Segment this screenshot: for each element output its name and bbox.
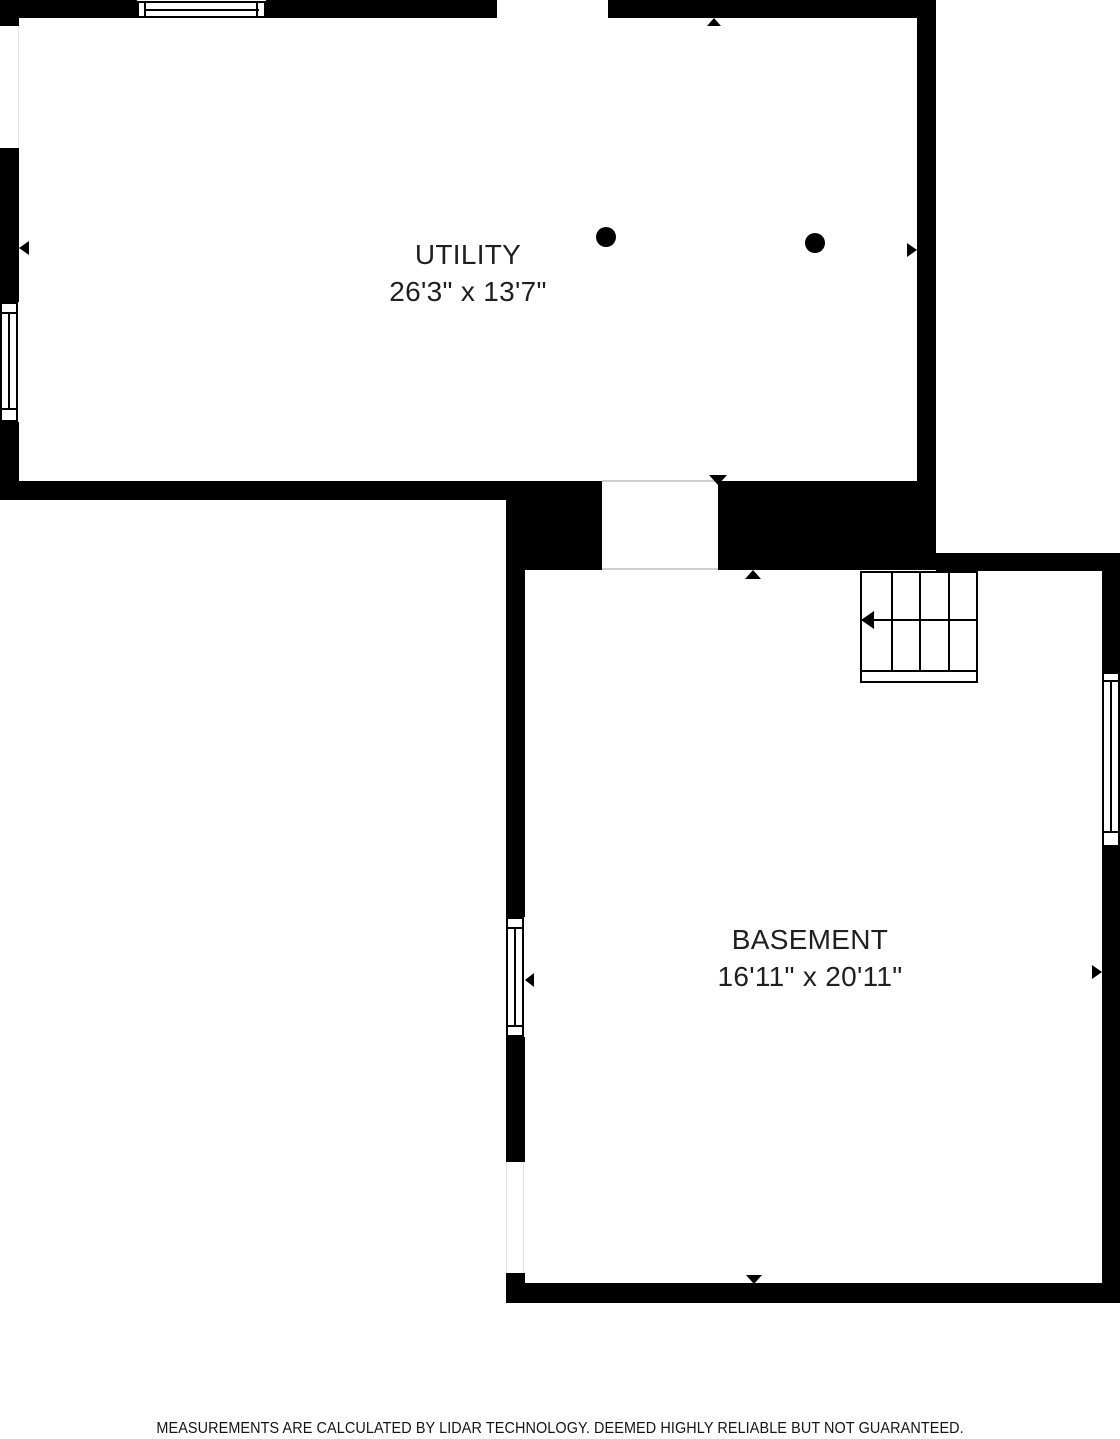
window-frame-line xyxy=(1110,682,1112,831)
window-frame-line xyxy=(1104,831,1118,833)
column-dot-icon xyxy=(596,227,616,247)
room-dimensions: 16'11" x 20'11" xyxy=(717,959,902,996)
entry-arrow-icon-basement-bottom xyxy=(746,1275,762,1284)
utility-left-wall-upper xyxy=(0,148,19,302)
utility-top-window-icon xyxy=(137,1,266,18)
basement-right-wall-lower xyxy=(1102,847,1120,1303)
basement-left-opening-line-b xyxy=(523,1162,524,1273)
utility-top-wall-left xyxy=(0,0,137,18)
column-dot-icon xyxy=(805,233,825,253)
basement-bottom-wall xyxy=(506,1283,1120,1303)
basement-right-window-icon xyxy=(1102,672,1120,847)
basement-top-wall xyxy=(936,553,1120,571)
stair-left-wall-block xyxy=(523,481,602,570)
entry-arrow-icon-basement-top xyxy=(745,570,761,579)
utility-top-wall-right xyxy=(608,0,936,18)
entry-arrow-icon-basement-left xyxy=(525,973,534,987)
stairs-icon xyxy=(860,571,978,683)
entry-arrow-icon-utility-top xyxy=(707,18,721,26)
stair-opening-bottom-line xyxy=(602,568,718,570)
entry-arrow-icon-stairs-down xyxy=(709,475,727,485)
room-name: UTILITY xyxy=(389,237,546,274)
window-frame-line xyxy=(508,1025,522,1027)
stair-direction-arrow-shaft xyxy=(874,619,976,621)
utility-room-label: UTILITY 26'3" x 13'7" xyxy=(389,237,546,310)
room-dimensions: 26'3" x 13'7" xyxy=(389,274,546,311)
stair-tread-line xyxy=(948,573,950,670)
entry-arrow-icon-utility-left xyxy=(19,241,29,255)
stair-direction-arrow-icon xyxy=(861,611,874,629)
stair-opening-top-line xyxy=(602,480,718,482)
entry-arrow-icon-basement-right xyxy=(1092,965,1102,979)
basement-right-wall-upper xyxy=(1102,553,1120,672)
basement-left-wall-upper xyxy=(506,497,525,917)
utility-left-wall-stub xyxy=(0,0,19,26)
measurement-disclaimer: MEASUREMENTS ARE CALCULATED BY LIDAR TEC… xyxy=(0,1420,1120,1438)
basement-room-label: BASEMENT 16'11" x 20'11" xyxy=(717,922,902,995)
entry-arrow-icon-utility-right xyxy=(907,243,917,257)
window-frame-line xyxy=(8,314,10,408)
utility-top-wall-mid xyxy=(266,0,497,18)
window-frame-line xyxy=(144,9,259,11)
disclaimer-text: MEASUREMENTS ARE CALCULATED BY LIDAR TEC… xyxy=(156,1420,963,1438)
window-frame-line xyxy=(514,929,516,1025)
stair-right-wall-block xyxy=(718,481,936,570)
stair-tread-line xyxy=(919,573,921,670)
basement-left-window-icon xyxy=(506,917,524,1037)
basement-left-wall-mid xyxy=(506,1037,525,1162)
utility-left-window-icon xyxy=(0,302,18,422)
room-name: BASEMENT xyxy=(717,922,902,959)
utility-left-opening-line xyxy=(18,26,19,148)
stair-tread-line xyxy=(891,573,893,670)
utility-bottom-wall xyxy=(0,481,523,500)
window-frame-line xyxy=(2,408,16,410)
floor-plan: UTILITY 26'3" x 13'7" BASEMENT 16'11" x … xyxy=(0,0,1120,1439)
basement-left-opening-line-a xyxy=(506,1162,507,1273)
stair-landing-line xyxy=(862,670,976,672)
